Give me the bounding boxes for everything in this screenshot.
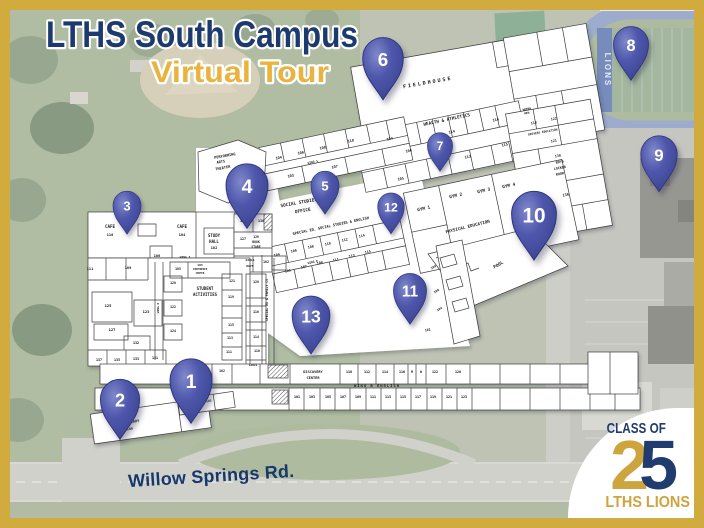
plan-label: 119 — [430, 395, 436, 399]
pin-number: 5 — [321, 179, 328, 194]
plan-label: 102 — [211, 246, 218, 250]
title-line-2: Virtual Tour — [151, 56, 329, 89]
plan-label: STUDY — [208, 233, 221, 238]
plan-label: 126 — [455, 370, 461, 374]
map-pin-4[interactable]: 4 — [220, 161, 274, 233]
map-pin-5[interactable]: 5 — [307, 169, 343, 217]
plan-label: 122 — [432, 370, 438, 374]
map-pin-12[interactable]: 12 — [374, 191, 408, 237]
plan-label: WING 3 — [180, 255, 191, 259]
plan-label: 120 — [170, 281, 176, 285]
plan-label: CENTER — [307, 376, 321, 380]
plan-label: WING D — [156, 303, 160, 314]
pin-number: 8 — [626, 37, 635, 55]
plan-label: 121 — [446, 395, 452, 399]
plan-label: BOYS — [246, 264, 253, 268]
plan-label: HALL — [209, 239, 219, 244]
plan-label: CENTER — [196, 272, 205, 275]
map-pin-1[interactable]: 1 — [164, 356, 218, 428]
plan-label: 127 — [109, 327, 116, 332]
badge-25: 2 5 — [610, 438, 678, 493]
plan-label: 105 — [325, 395, 331, 399]
plan-label: 132 — [133, 341, 139, 345]
plan-label: 133 — [133, 357, 139, 361]
plan-label: 137 — [96, 358, 102, 362]
pin-number: 1 — [186, 371, 197, 393]
plan-label: M — [411, 370, 413, 374]
plan-label: 113 — [227, 336, 233, 340]
plan-label: 121 — [229, 279, 235, 283]
plan-label: 109 — [355, 395, 361, 399]
plan-label: 112 — [364, 370, 370, 374]
plan-label: WING B ENGLISH — [354, 383, 400, 388]
plan-label: 123 — [461, 395, 467, 399]
pin-number: 2 — [115, 391, 125, 411]
map-pin-6[interactable]: 6 — [357, 35, 409, 105]
plan-label: BOOK — [252, 240, 260, 244]
plan-label: 109 — [125, 266, 132, 270]
pin-number: 6 — [378, 49, 388, 70]
plan-label: GIRLS — [245, 258, 254, 262]
plan-label: 111 — [370, 395, 376, 399]
plan-label: 124 — [170, 329, 176, 333]
pin-number: 13 — [301, 306, 321, 326]
plan-label: 102 — [263, 260, 269, 264]
badge-digit-5: 5 — [639, 438, 678, 493]
pin-number: 4 — [242, 176, 253, 198]
pin-number: 11 — [402, 284, 419, 301]
plan-label: STUDENT — [197, 286, 214, 291]
pin-number: 3 — [123, 199, 130, 214]
plan-label: 117 — [415, 395, 421, 399]
plan-label: CONFERENCE — [193, 268, 208, 271]
plan-label: W — [420, 370, 422, 374]
plan-label: 103 — [197, 263, 203, 267]
pin-number: 12 — [384, 200, 398, 214]
plan-label: 127 — [240, 237, 246, 241]
plan-label: 120 — [253, 280, 259, 284]
title-line-1: LTHS South Campus — [46, 14, 358, 55]
plan-label: 101 — [294, 395, 300, 399]
plan-label: 116 — [399, 370, 405, 374]
map-pin-3[interactable]: 3 — [109, 189, 145, 237]
badge-class-of: CLASS OF — [607, 421, 666, 436]
plan-label: SPECIAL ED & FAMILY CS — [265, 279, 269, 321]
plan-label: 105 — [175, 267, 181, 271]
plan-label: 102 — [219, 369, 225, 373]
plan-label: STORE — [251, 245, 260, 249]
plan-label: 131 — [152, 356, 158, 360]
pin-number: 10 — [522, 205, 545, 228]
plan-label: ACTIVITIES — [193, 292, 218, 297]
plan-label: GIRLS — [249, 363, 258, 367]
plan-label: 110 — [254, 349, 260, 353]
map-pin-8[interactable]: 8 — [609, 24, 654, 84]
map-pin-2[interactable]: 2 — [95, 376, 145, 443]
map-pin-10[interactable]: 10 — [505, 188, 563, 265]
plan-label: 116 — [253, 310, 259, 314]
plan-label: 115 — [400, 395, 406, 399]
plan-label: 114 — [253, 335, 259, 339]
plan-label: 135 — [114, 358, 120, 362]
map-pin-11[interactable]: 11 — [389, 271, 431, 328]
plan-label: 119 — [228, 295, 234, 299]
badge-lths-lions: LTHS LIONS — [605, 494, 690, 512]
plan-label: 115 — [228, 323, 234, 327]
map-pin-7[interactable]: 7 — [424, 131, 456, 174]
plan-label: 103 — [309, 395, 315, 399]
plan-label: 113 — [385, 395, 391, 399]
pin-number: 9 — [654, 146, 663, 165]
virtual-tour-map: LIONS — [0, 0, 704, 528]
plan-label: 111 — [87, 267, 94, 271]
plan-label: CAFE — [177, 224, 188, 229]
plan-label: 104 — [179, 233, 186, 237]
plan-label: DISCOVERY — [303, 370, 323, 374]
plan-label: 114 — [382, 370, 388, 374]
plan-label: 110 — [346, 370, 352, 374]
plan-label: 122 — [170, 305, 176, 309]
plan-label: 123 — [143, 309, 151, 314]
plan-label: 111 — [226, 350, 232, 354]
pin-number: 7 — [437, 140, 444, 153]
plan-label: 106 — [154, 254, 161, 258]
plan-label: 107 — [340, 395, 346, 399]
map-pin-13[interactable]: 13 — [287, 293, 336, 358]
map-pin-9[interactable]: 9 — [636, 133, 683, 195]
plan-label: 129 — [253, 235, 259, 239]
plan-label: 125 — [105, 303, 113, 308]
